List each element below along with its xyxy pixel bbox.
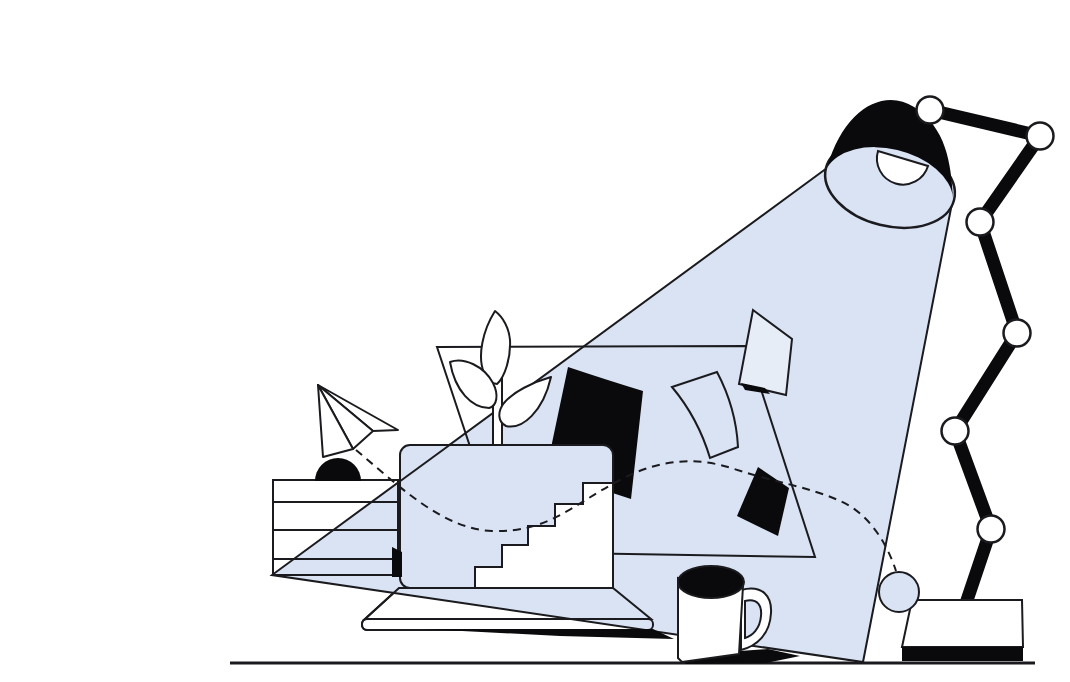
lamp-joint-6	[978, 516, 1005, 543]
blue-ball	[879, 572, 919, 612]
lamp-joint-1	[917, 97, 944, 124]
lamp-base-plinth	[902, 647, 1023, 661]
lamp-joint-2	[1027, 123, 1054, 150]
workspace-illustration: Flat line-art illustration of a desk lam…	[0, 0, 1070, 682]
box-laptop-gap-shadow	[392, 547, 402, 577]
lamp-joint-4	[1004, 320, 1031, 347]
illustration-canvas: Flat line-art illustration of a desk lam…	[0, 0, 1070, 682]
coffee-surface	[678, 566, 744, 598]
lamp-base-top	[902, 600, 1023, 647]
lamp-joint-3	[967, 209, 994, 236]
lamp-joint-5	[942, 418, 969, 445]
